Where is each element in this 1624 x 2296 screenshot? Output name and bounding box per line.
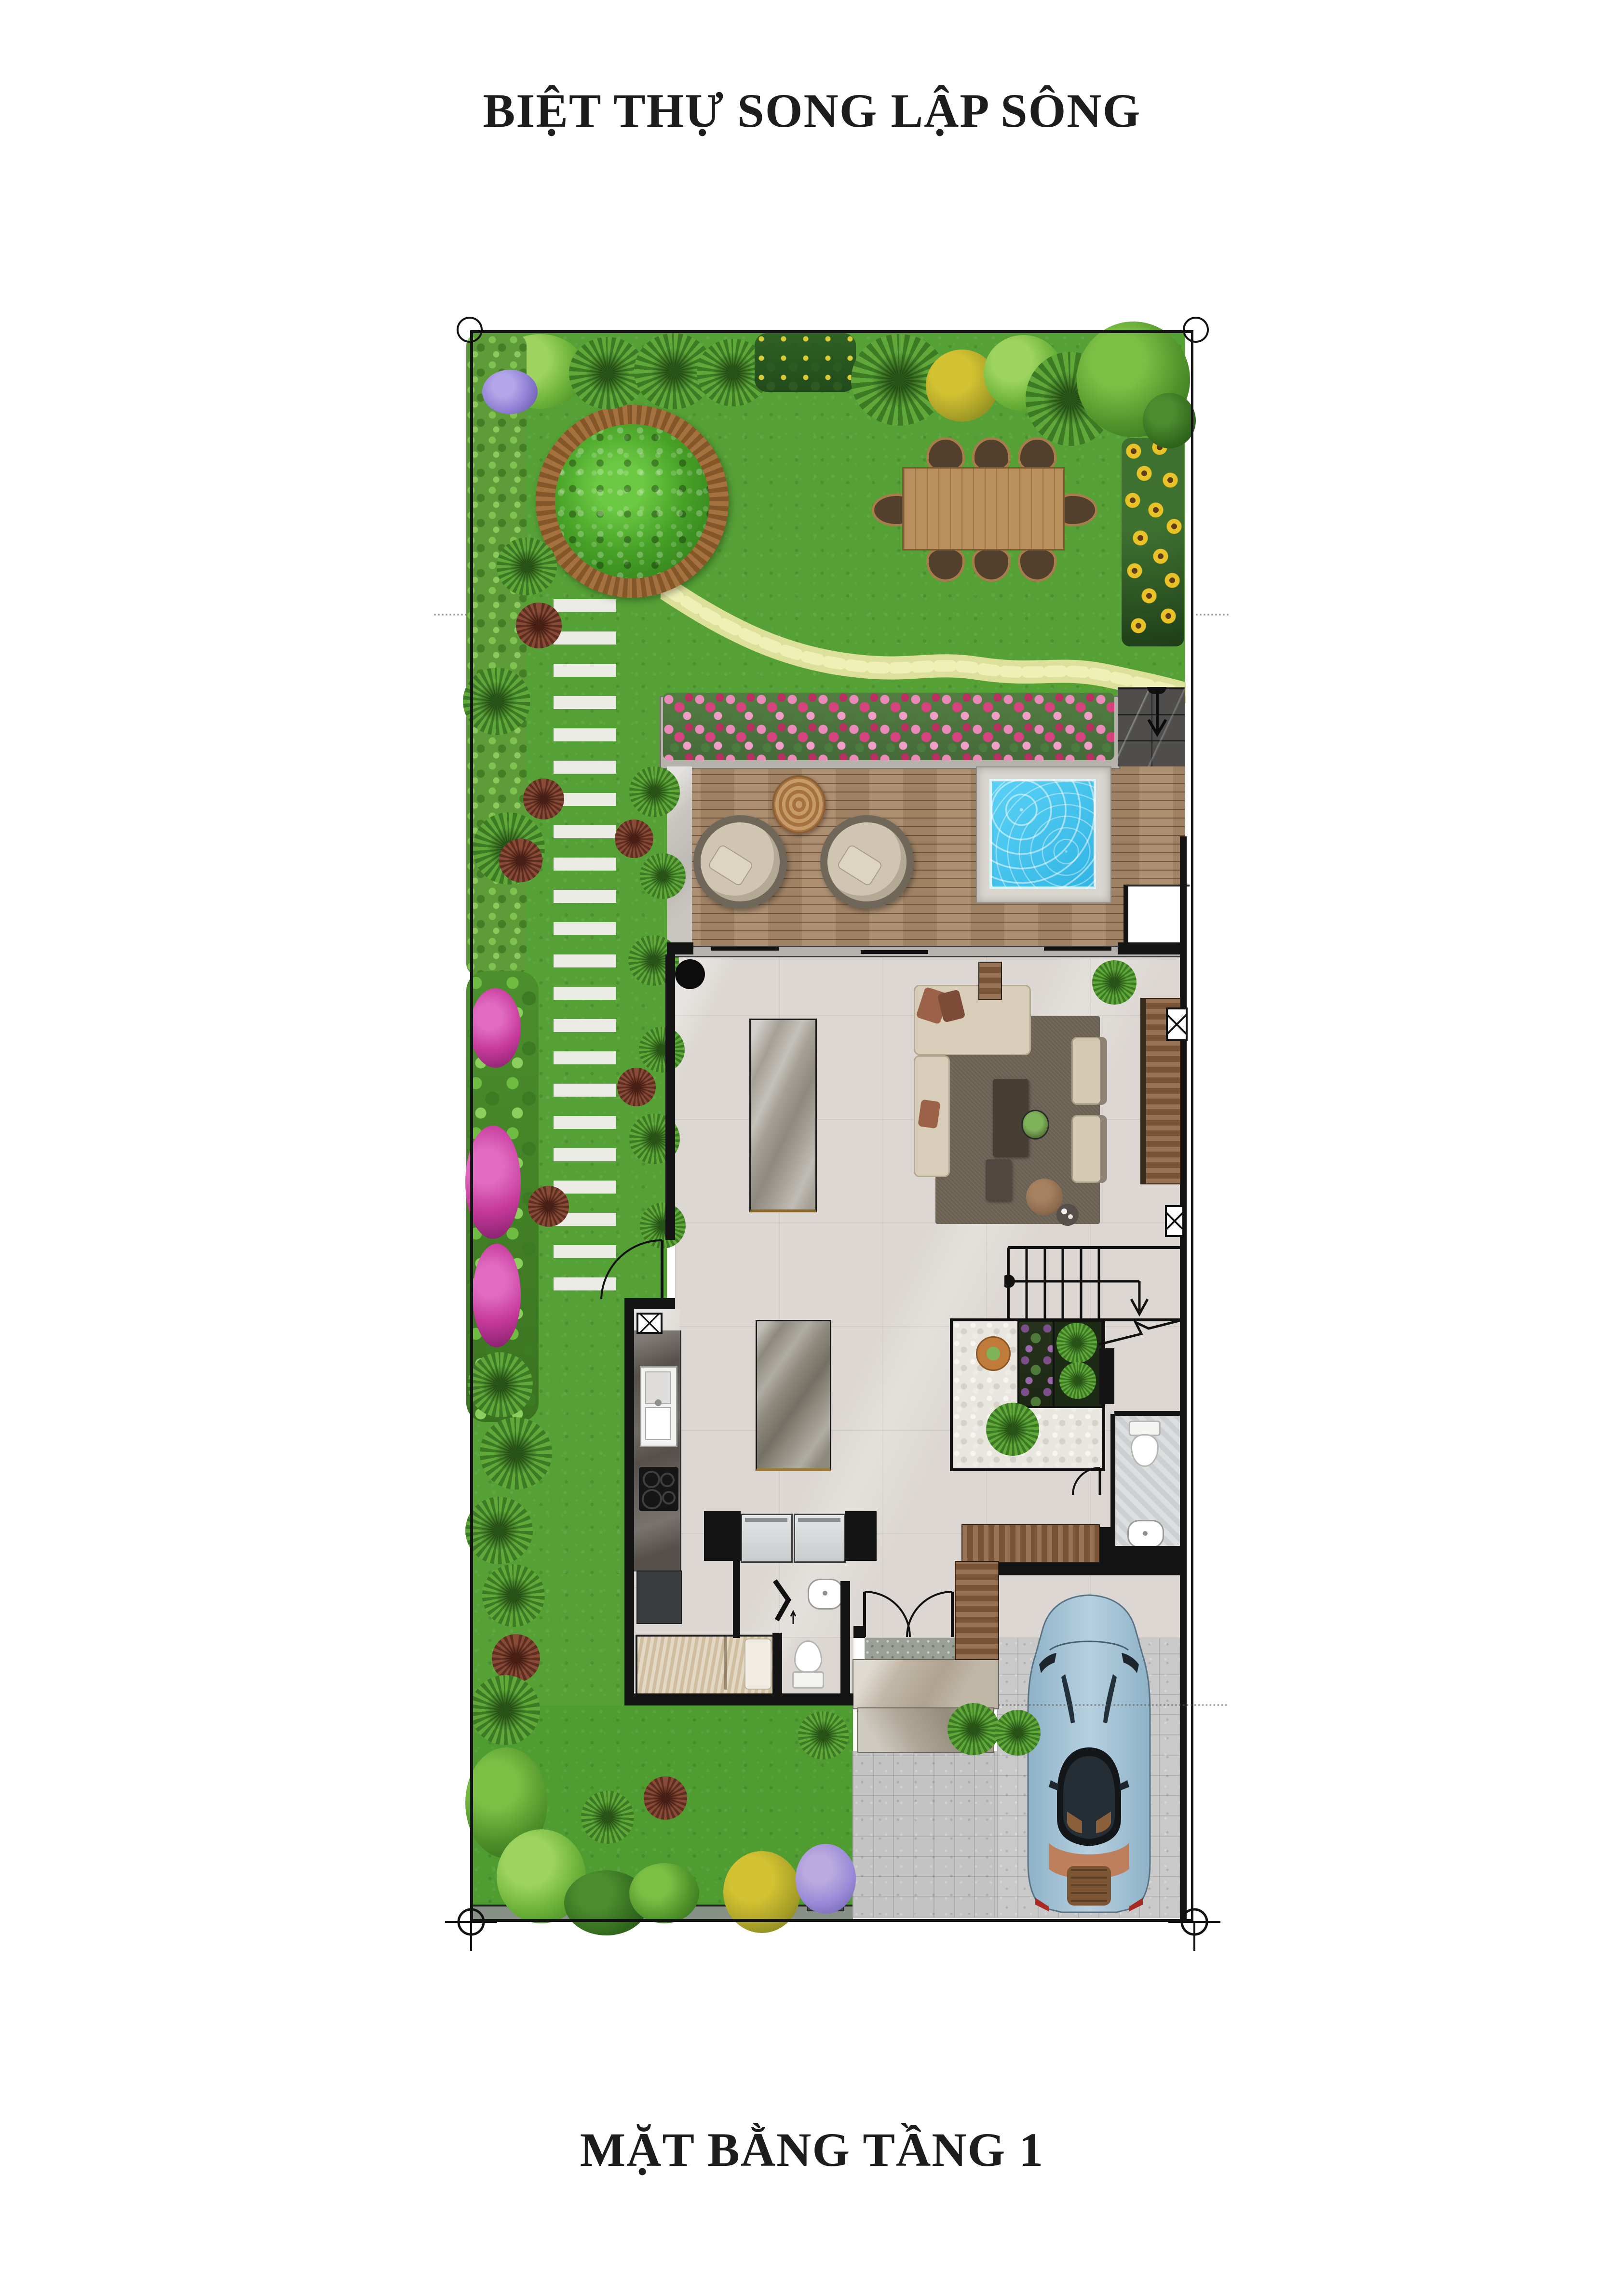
garden-palm (639, 1027, 685, 1073)
red-dracaena (516, 603, 562, 648)
wall-jog (624, 1298, 675, 1309)
red-dracaena (644, 1776, 687, 1820)
floor-plan (470, 330, 1193, 1922)
wall-bath-bottom (1114, 1546, 1182, 1575)
survey-dotted-line (1196, 614, 1229, 616)
red-dracaena (499, 839, 542, 882)
sunflower-icon (1160, 608, 1177, 624)
bathroom-toilet (1129, 1421, 1158, 1465)
duct-shaft-icon (1165, 1205, 1184, 1237)
maid-wc-toilet (792, 1640, 821, 1687)
folding-door (769, 1578, 803, 1628)
page-title: BIỆT THỰ SONG LẬP SÔNG (0, 84, 1624, 137)
wall-bathroom-left (1110, 1414, 1115, 1546)
garden-side-door (598, 1237, 666, 1302)
freezer (794, 1514, 846, 1563)
duct-shaft-icon (636, 1313, 663, 1334)
armchair (1071, 1115, 1107, 1183)
border-palm (482, 1564, 545, 1627)
survey-marker-icon (457, 317, 483, 343)
tray-bowl (1061, 1208, 1067, 1214)
garden-palm (629, 766, 680, 817)
toilet-tank (792, 1671, 824, 1689)
wall-appliance-right (845, 1511, 877, 1561)
sunflower-bed (1122, 438, 1184, 646)
bougainvillea-cluster (470, 988, 521, 1068)
wall-left-upper (665, 954, 675, 1240)
faucet-icon (1143, 1531, 1148, 1536)
bougainvillea-cluster (473, 1244, 521, 1347)
fern-plant (986, 1403, 1039, 1456)
kitchen-sink (640, 1366, 677, 1447)
sunflower-icon (1141, 588, 1157, 604)
bougainvillea-cluster (465, 1126, 521, 1239)
plan-caption: MẶT BẰNG TẦNG 1 (0, 2123, 1624, 2176)
potted-plant (1092, 960, 1137, 1005)
hedge-flowering (755, 333, 856, 392)
sports-car (1021, 1592, 1157, 1914)
red-dracaena (523, 779, 564, 819)
wall-powder (733, 1561, 740, 1638)
tray-table (1056, 1204, 1079, 1226)
plunge-pool-water (989, 779, 1096, 889)
blanket-fold (724, 1637, 727, 1690)
walkway-direction-arrow (1145, 691, 1169, 745)
sunflower-icon (1136, 465, 1152, 482)
faucet-icon (823, 1591, 827, 1596)
entry-wood-wall (955, 1561, 999, 1660)
entry-step-slab (853, 1659, 999, 1709)
tray-bowl (1068, 1214, 1073, 1219)
table-plant (1021, 1110, 1049, 1140)
entry-bench (961, 1524, 1100, 1563)
bed-pillow (744, 1638, 771, 1690)
border-palm (470, 1675, 540, 1745)
kitchen-cabinet (636, 1571, 682, 1624)
burner-icon (643, 1471, 660, 1488)
sunflower-icon (1162, 472, 1178, 488)
sofa-pillow (918, 1099, 940, 1128)
boundary-left (470, 330, 473, 1922)
cooktop (639, 1467, 678, 1511)
entry-double-door (862, 1573, 955, 1640)
sunflower-icon (1124, 492, 1141, 509)
wall-pier (1118, 942, 1185, 954)
sunflower-icon (1148, 502, 1164, 518)
faucet-icon (655, 1399, 662, 1406)
purple-flower-cluster (482, 370, 538, 414)
refrigerator (741, 1514, 793, 1563)
boundary-bottom (470, 1919, 1193, 1922)
boundary-top (470, 330, 1193, 333)
sunflower-icon (1126, 563, 1143, 579)
outdoor-dining-table (902, 467, 1065, 551)
wall-garage-top (997, 1561, 1099, 1575)
wall-entry-jamb (853, 1626, 865, 1638)
planter-tree-canopy (555, 424, 709, 578)
red-dracaena (615, 819, 653, 858)
winding-stone-path (661, 571, 1186, 711)
border-palm (480, 1417, 552, 1490)
page: { "page": { "title": "BIỆT THỰ SONG LẬP … (0, 0, 1624, 2296)
sink-bowl (645, 1407, 671, 1440)
wood-slice-table (772, 775, 826, 834)
survey-dotted-line (434, 614, 467, 616)
bathroom-basin (1127, 1520, 1164, 1548)
burner-icon (642, 1489, 662, 1509)
red-dracaena (528, 1186, 569, 1227)
survey-crosshair-icon (440, 1891, 502, 1953)
border-palm (465, 1497, 533, 1564)
border-palm (463, 668, 530, 735)
bathroom-door (1072, 1464, 1103, 1498)
survey-marker-icon (1183, 317, 1209, 343)
powder-basin (808, 1579, 843, 1610)
sunflower-icon (1132, 530, 1149, 546)
sunflower-icon (1166, 518, 1182, 535)
sliding-door-leaf (711, 947, 779, 951)
sofa-side-table (978, 962, 1002, 1000)
sunflower-icon (1125, 443, 1142, 459)
sunflower-icon (1130, 618, 1147, 634)
survey-dotted-line (998, 1704, 1227, 1706)
corner-bush (1143, 393, 1196, 448)
maid-bed (636, 1635, 777, 1695)
wall-left-lower (624, 1309, 634, 1705)
wall-bathroom-top (1114, 1411, 1182, 1416)
sunflower-icon (1164, 572, 1180, 589)
kitchen-island (756, 1320, 831, 1471)
burner-icon (662, 1491, 676, 1504)
wall-appliance-left (704, 1511, 741, 1561)
wall-maid-partition (772, 1633, 782, 1694)
wall-bottom (634, 1693, 853, 1705)
wall-chunk (1099, 1348, 1114, 1404)
burner-icon (660, 1473, 675, 1487)
duct-shaft-icon (1166, 1007, 1188, 1041)
armchair (1071, 1037, 1107, 1105)
rear-bush (629, 1863, 699, 1923)
pink-flower-hedge (663, 693, 1114, 760)
garden-palm (640, 853, 686, 899)
sunflower-icon (1152, 548, 1169, 564)
wall-pier (667, 942, 693, 954)
red-dracaena (617, 1068, 656, 1106)
sliding-door-leaf (1044, 947, 1111, 951)
column (675, 959, 705, 989)
fern-plant (1059, 1362, 1096, 1399)
dining-table (749, 1019, 817, 1212)
toilet-bowl (1131, 1434, 1159, 1467)
entry-fern (995, 1710, 1041, 1756)
border-palm (468, 1352, 533, 1417)
coffee-table-small (986, 1159, 1012, 1201)
survey-crosshair-icon (1164, 1891, 1225, 1953)
entry-fern (947, 1703, 1000, 1755)
sliding-door-leaf (861, 950, 928, 954)
appliance-handle (745, 1518, 787, 1522)
staircase (1004, 1244, 1183, 1347)
wall-wc-partition (840, 1581, 850, 1705)
driveway-pavers (853, 1751, 997, 1918)
lavender-cluster (796, 1844, 856, 1914)
border-fern (497, 537, 557, 595)
toilet-bowl (794, 1640, 822, 1673)
appliance-handle (798, 1518, 840, 1522)
rear-fern (581, 1791, 634, 1844)
wall-right (1180, 836, 1187, 1920)
boundary-right (1191, 330, 1193, 1922)
rear-palm (798, 1711, 849, 1759)
